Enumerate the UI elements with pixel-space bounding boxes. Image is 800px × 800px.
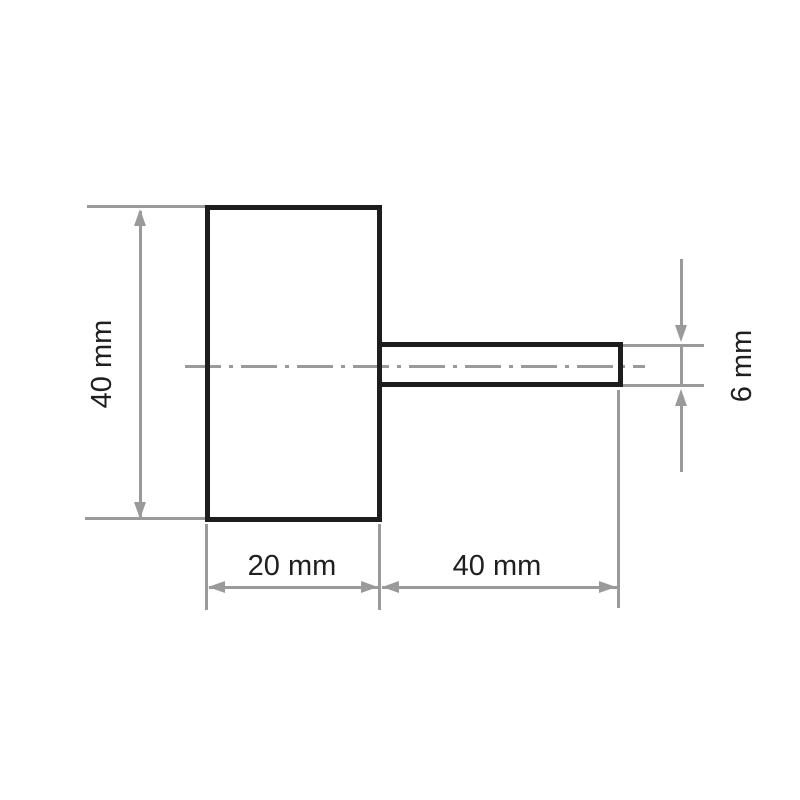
diameter-dimension-label: 6 mm: [724, 306, 760, 426]
width-dimension-label: 20 mm: [212, 548, 372, 584]
extension-line-body-top: [87, 205, 205, 208]
height-dimension-label: 40 mm: [84, 294, 120, 434]
height-dimension-line: [139, 211, 142, 517]
diameter-arrow-top-tail: [680, 259, 683, 325]
diameter-arrow-bottom-icon: [675, 389, 687, 406]
extension-line-shaft-end: [617, 390, 620, 608]
height-arrow-top-icon: [134, 209, 146, 226]
part-shaft-outline: [377, 342, 623, 387]
shaft-length-dimension-line: [382, 586, 617, 589]
extension-line-shaft-top: [622, 344, 704, 347]
extension-line-shaft-bottom: [622, 384, 704, 387]
part-body-outline: [205, 205, 382, 522]
diameter-dimension-line: [680, 347, 683, 384]
shaft-length-arrow-left-icon: [382, 581, 399, 593]
shaft-length-arrow-right-icon: [599, 581, 616, 593]
extension-line-width-right: [378, 524, 381, 610]
drawing-canvas: 40 mm 20 mm 40 mm 6 mm: [0, 0, 800, 800]
diameter-arrow-top-icon: [675, 325, 687, 342]
shaft-length-dimension-label: 40 mm: [417, 548, 577, 584]
extension-line-width-left: [205, 524, 208, 610]
diameter-arrow-bottom-tail: [680, 405, 683, 472]
width-dimension-line: [209, 586, 379, 589]
height-arrow-bottom-icon: [134, 502, 146, 519]
